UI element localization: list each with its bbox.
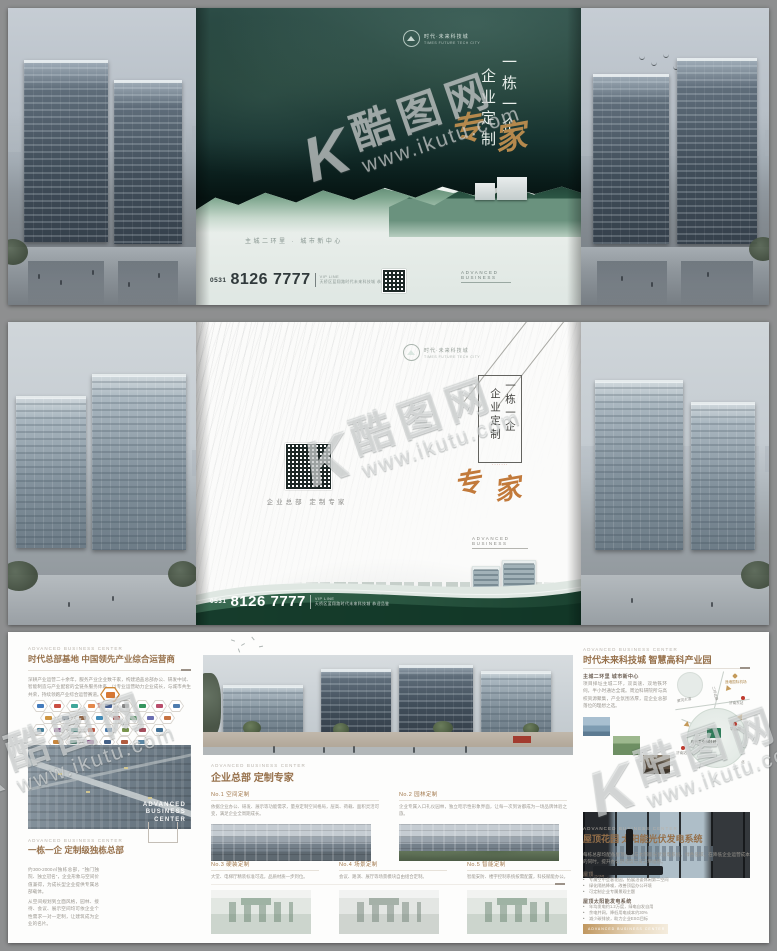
map-zone-circle (677, 672, 703, 698)
panel-cover-dark: 时代·未来科技城 TIMES FUTURE TECH CITY 一栋一企 企业定… (8, 8, 769, 305)
glass-tower (24, 60, 108, 242)
glass-tower (595, 380, 683, 550)
pedestrian (631, 598, 633, 603)
item-text: 依据企业办公、研发、展示等功能需求，量身定制空间格局，层高、荷载、面积灵活可变，… (211, 804, 379, 821)
seed-mark (231, 639, 235, 641)
item-no: No.4 (339, 862, 352, 868)
partner-logo-hex (83, 700, 99, 712)
gold-band: ADVANCED BUSINESS CENTER (583, 924, 668, 934)
executive-office-photo (583, 812, 750, 878)
rule (583, 668, 750, 669)
partner-logo-hex (142, 712, 158, 724)
sofa-silhouette (593, 866, 663, 875)
underline (339, 870, 447, 871)
green-wave (196, 559, 581, 625)
tree (749, 237, 769, 261)
map-project-marker (707, 728, 721, 738)
feature-item: No.2 园林定制 企业专属入口礼仪园林，独立昭示性形象界面，让每一次到访都成为… (399, 790, 567, 861)
gold-band-text: ADVANCED BUSINESS CENTER (588, 927, 665, 931)
pedestrian (112, 596, 114, 601)
brand-logo-icon (403, 344, 420, 361)
reflection (597, 261, 667, 305)
seed-mark (251, 637, 254, 641)
partner-logo-hex (117, 700, 133, 712)
underline (472, 548, 528, 549)
cover-artwork: 时代·未来科技城 TIMES FUTURE TECH CITY 一栋一企 企业定… (196, 8, 581, 305)
section-heading: 一栋一企 定制级独栋总部 (28, 844, 124, 856)
section-paragraph: 从空间规划到立面风格，园林、接待、会议、展示空间均可依企业个性需求一对一定制，让… (28, 898, 99, 927)
campus-panorama-photo (203, 655, 573, 755)
panel-inner-content: ADVANCED BUSINESS CENTER 时代总部基地 中国领先产业综合… (8, 632, 769, 943)
pedestrian (413, 747, 415, 753)
location-map: 遥墙国际机场 济南东站 华山湖 济南站 二环北路 黄河大道 时代未来科技城 北 (675, 670, 750, 772)
brand-logo-icon (403, 30, 420, 47)
phone-number: 8126 7777 (230, 272, 310, 288)
partner-logo-hex (125, 712, 141, 724)
building-photo-right (581, 322, 769, 625)
building-photo-right (581, 8, 769, 305)
highlight-block (148, 797, 152, 799)
pedestrian (38, 274, 40, 279)
section-heading: 企业总部 定制专家 (211, 769, 294, 784)
road (8, 575, 196, 625)
brand-name: 时代·未来科技城 (424, 33, 480, 40)
item-photo (211, 890, 311, 934)
partner-logo-hex (134, 724, 150, 736)
partner-logo-hex (159, 712, 175, 724)
glass-tower (114, 80, 182, 244)
partner-logo-hex (32, 724, 48, 736)
panel-cover-light: 时代·未来科技城 TIMES FUTURE TECH CITY 企业总部 定制专… (8, 322, 769, 625)
partner-logo-hex (66, 724, 82, 736)
map-pin-label: 遥墙国际机场 (725, 680, 747, 685)
section-eyebrow: ADVANCED BUSINESS CENTER (28, 838, 123, 843)
item-photo (339, 890, 439, 934)
cover-artwork: 时代·未来科技城 TIMES FUTURE TECH CITY 企业总部 定制专… (196, 322, 581, 625)
brochure-preview: 时代·未来科技城 TIMES FUTURE TECH CITY 一栋一企 企业定… (0, 0, 777, 951)
feature-item: No.4 场景定制 会议、路演、展厅等场景模块自由组合定制。 (339, 860, 447, 934)
map-project-label: 时代未来科技城 (691, 740, 716, 745)
tree (741, 561, 769, 589)
underline (399, 800, 567, 801)
map-pin (681, 746, 685, 750)
house-render (475, 174, 535, 204)
pedestrian (465, 746, 467, 753)
item-title: 园林定制 (414, 792, 438, 798)
map-pin-label: 华山湖 (730, 727, 741, 732)
map-road-label: 黄河大道 (677, 697, 692, 704)
calligraphy-zhuanjia: 专家 (448, 105, 517, 148)
partner-logo-hex (57, 712, 73, 724)
brand-logo: 时代·未来科技城 TIMES FUTURE TECH CITY (403, 344, 480, 361)
title-line-1: 一栋一企 (503, 380, 518, 458)
glass-tower (16, 396, 86, 548)
building-photo-left (8, 322, 196, 625)
pedestrian (651, 282, 653, 287)
pedestrian (353, 746, 355, 753)
section-body: 项目择址主城二环，双高速、双地铁环伺，半小时通达全城。周边科研院所与高校资源聚集… (583, 680, 667, 709)
section-eyebrow: ADVANCED BUSINESS CENTER (28, 646, 123, 651)
bird (639, 56, 645, 60)
house-block (475, 183, 495, 200)
qr-code (285, 443, 332, 490)
section-heading: 屋顶花园 太阳能光伏发电系统 (583, 832, 703, 845)
brand-logo: 时代·未来科技城 TIMES FUTURE TECH CITY (403, 30, 480, 47)
contact-note-2: 天桥区蓝翔路时代未来科技城 恭迎品鉴 (315, 602, 407, 607)
divider (315, 273, 316, 287)
partner-logo-hex (49, 700, 65, 712)
boxed-title-vertical: 一栋一企 企业定制 (478, 375, 522, 463)
aerial-caption: ADVANCED BUSINESS CENTER (143, 802, 186, 825)
item-no: No.3 (211, 862, 224, 868)
bird (663, 54, 669, 58)
partner-logo-hex (100, 724, 116, 736)
pedestrian (60, 280, 62, 285)
partner-logo-hex (66, 700, 82, 712)
item-title: 空间定制 (226, 792, 250, 798)
building-photo-left (8, 8, 196, 305)
person-silhouette (626, 829, 633, 855)
project-sign (513, 736, 531, 743)
reflection (118, 261, 178, 305)
ground (203, 747, 573, 755)
divider (310, 595, 311, 609)
section-paragraph: 约300-2000㎡独栋总部，“独门独院、独立冠名”，企业形象与空间价值兼得，为… (28, 866, 99, 895)
item-text: 会议、路演、展厅等场景模块自由组合定制。 (339, 874, 447, 887)
section-eyebrow: ADVANCED BUSINESS CENTER (583, 647, 678, 652)
glass-tower (691, 402, 755, 550)
item-no: No.1 (211, 792, 224, 798)
section-body: 每栋总部均配备屋顶花园与太阳能光伏发电系统，绿色低碳，在降低企业运营成本的同时，… (583, 851, 750, 866)
reflection (28, 261, 104, 305)
pedestrian (711, 602, 713, 607)
bullet-item: 可定制企业专属景观主题 (583, 889, 683, 895)
partner-logo-hex (108, 712, 124, 724)
tagline: 主城二环里 · 城市新中心 (245, 236, 343, 245)
house-block (497, 177, 527, 200)
tree (203, 673, 221, 739)
partner-logo-hex (117, 724, 133, 736)
underline (211, 870, 319, 871)
pedestrian (158, 273, 160, 278)
partner-logo-hex (151, 724, 167, 736)
item-photo (211, 824, 371, 861)
phone-area-code: 0531 (210, 277, 226, 284)
item-photo (467, 890, 567, 934)
bullet-item: 减少碳排放，助力企业ESG目标 (583, 916, 683, 922)
phone-area-code: 0531 (210, 598, 226, 605)
item-no: No.5 (467, 862, 480, 868)
partner-logo-hex (91, 712, 107, 724)
map-pin (741, 696, 745, 700)
section-heading: 时代总部基地 中国领先产业综合运营商 (28, 653, 175, 665)
seed-mark (259, 646, 263, 648)
feature-item: No.3 硬装定制 大堂、电梯厅精装标准可选，品质材质一步到位。 (211, 860, 319, 934)
qr-code (382, 269, 406, 293)
section-eyebrow: ADVANCED BUSINESS CENTER (211, 763, 306, 768)
bullet-list: 年均发电约1.2万度，绿电自发自用 余电并网，降低用电成本约30% 减少碳排放，… (583, 904, 683, 922)
underline (467, 870, 571, 871)
item-title: 场景定制 (354, 862, 378, 868)
pedestrian (128, 282, 130, 287)
map-pin-label: 济南站 (676, 751, 687, 756)
item-no: No.2 (399, 792, 412, 798)
tree (168, 561, 196, 587)
pedestrian (273, 746, 275, 753)
thumb-photo-interior (643, 755, 670, 774)
highlight-block (58, 773, 62, 775)
advanced-business-label: ADVANCED BUSINESS (472, 536, 528, 549)
section-heading: 时代未来科技城 智慧高科产业园 (583, 653, 712, 666)
item-title: 硬装定制 (226, 862, 250, 868)
bird (651, 62, 657, 66)
contact-block: 0531 8126 7777 VIP LINE 天桥区蓝翔路时代未来科技城 恭迎… (210, 594, 407, 609)
map-arrow (724, 685, 732, 693)
partner-logo-hex (49, 724, 65, 736)
item-title: 智能定制 (482, 862, 506, 868)
glass-tower (677, 58, 757, 244)
map-pin-airport (732, 673, 738, 679)
item-text: 智能安防、楼宇控制系统按需配置，科技赋能办公。 (467, 874, 571, 887)
title-line-2: 企业定制 (488, 388, 503, 458)
corner-bracket (148, 822, 178, 843)
partner-logo-hex (168, 700, 184, 712)
partner-logo-hex (134, 700, 150, 712)
column-right: ADVANCED BUSINESS CENTER 时代未来科技城 智慧高科产业园… (583, 632, 750, 943)
partner-logo-hex (83, 724, 99, 736)
qr-caption: 企业总部 定制专家 (257, 496, 357, 506)
advanced-business-label: ADVANCED BUSINESS (461, 270, 511, 283)
office-building (321, 669, 391, 733)
partner-logo-grid: 中国新能源 (28, 698, 191, 750)
phone-number: 8126 7777 (230, 594, 305, 609)
item-photo (399, 824, 559, 861)
feature-item: No.5 智能定制 智能安防、楼宇控制系统按需配置，科技赋能办公。 (467, 860, 571, 934)
aerial-city-photo: ADVANCED BUSINESS CENTER (28, 745, 191, 829)
column-left: ADVANCED BUSINESS CENTER 时代总部基地 中国领先产业综合… (28, 632, 191, 943)
road (581, 575, 769, 625)
highlight-block (86, 791, 90, 793)
pedestrian (92, 270, 94, 275)
seed-mark (241, 643, 245, 646)
pedestrian (707, 272, 709, 277)
partner-logo-hex (74, 712, 90, 724)
pedestrian (621, 276, 623, 281)
map-pin-label: 济南东站 (729, 701, 743, 706)
column-middle: ADVANCED BUSINESS CENTER 企业总部 定制专家 No.1 … (203, 632, 573, 943)
partner-logo-hex (151, 700, 167, 712)
pedestrian (68, 602, 70, 607)
reflection (681, 261, 753, 305)
contact-note-1: VIP LINE (315, 597, 407, 601)
thumb-photo-bridge (583, 717, 610, 736)
underline (461, 282, 511, 283)
brand-name: 时代·未来科技城 (424, 347, 480, 354)
highlight-block (124, 767, 128, 769)
partner-logo-hex (40, 712, 56, 724)
glass-tower (593, 74, 669, 244)
office-building (223, 685, 303, 733)
thumb-photo-park (613, 736, 640, 755)
glass-tower (92, 374, 186, 550)
partner-logo-hex (32, 700, 48, 712)
item-text: 企业专属入口礼仪园林，独立昭示性形象界面，让每一次到访都成为一场品牌体验之旅。 (399, 804, 567, 821)
feature-item: No.1 空间定制 依据企业办公、研发、展示等功能需求，量身定制空间格局，层高、… (211, 790, 379, 861)
map-pin (733, 722, 737, 726)
office-building (481, 671, 551, 733)
calligraphy-zhuanjia: 专家 (452, 464, 510, 500)
brand-tagline: TIMES FUTURE TECH CITY (424, 355, 480, 359)
section-subhead: 主城二环里 城市新中心 (583, 673, 639, 680)
rule (28, 670, 191, 671)
map-arrow (737, 714, 743, 720)
pedestrian (323, 747, 325, 753)
underline (211, 800, 379, 801)
brand-tagline: TIMES FUTURE TECH CITY (424, 41, 480, 45)
map-compass: 北 (741, 760, 745, 765)
seed-mark (238, 648, 240, 652)
bullet-list: 专属空中会客花园，拓展洽谈休闲第二空间 绿化隔热降噪，改善顶层办公环境 可定制企… (583, 877, 683, 895)
item-text: 大堂、电梯厅精装标准可选，品质材质一步到位。 (211, 874, 319, 887)
